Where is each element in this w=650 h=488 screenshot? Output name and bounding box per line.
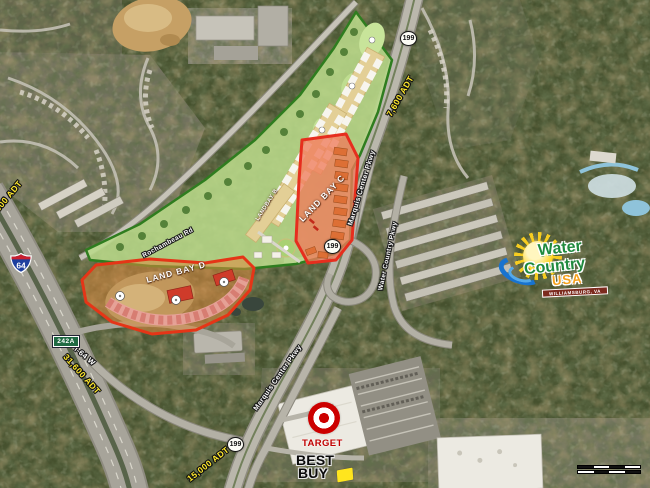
- best-buy-logo: BEST BUY: [296, 454, 334, 480]
- route-199-shield-south: 199: [227, 437, 244, 452]
- scale-bar-row: [577, 465, 641, 469]
- interstate-64-number: 64: [16, 260, 26, 270]
- best-buy-line2: BUY: [296, 467, 334, 480]
- exit-242a-sign: 242A: [53, 336, 79, 347]
- scale-bar-row: [577, 470, 641, 474]
- route-199-number: 199: [327, 243, 339, 250]
- interstate-64-shield: 64: [9, 252, 33, 279]
- route-199-shield-middle: 199: [324, 239, 341, 254]
- route-199-number: 199: [403, 35, 415, 42]
- target-logo-text: TARGET: [302, 438, 343, 449]
- water-country-word3: USA: [551, 271, 583, 289]
- exit-242a-text: 242A: [57, 338, 75, 345]
- route-199-shield-north: 199: [400, 31, 417, 46]
- aerial-site-map: Rochambeau Rd Marquis Center Pkwy Water …: [0, 0, 650, 488]
- bigbox-building: [437, 434, 543, 488]
- map-scale-bar: [577, 465, 641, 474]
- water-country-usa-logo: Water Country USA WILLIAMSBURG, VA: [498, 226, 633, 318]
- target-bullseye-icon: [308, 402, 340, 434]
- route-199-number: 199: [230, 441, 242, 448]
